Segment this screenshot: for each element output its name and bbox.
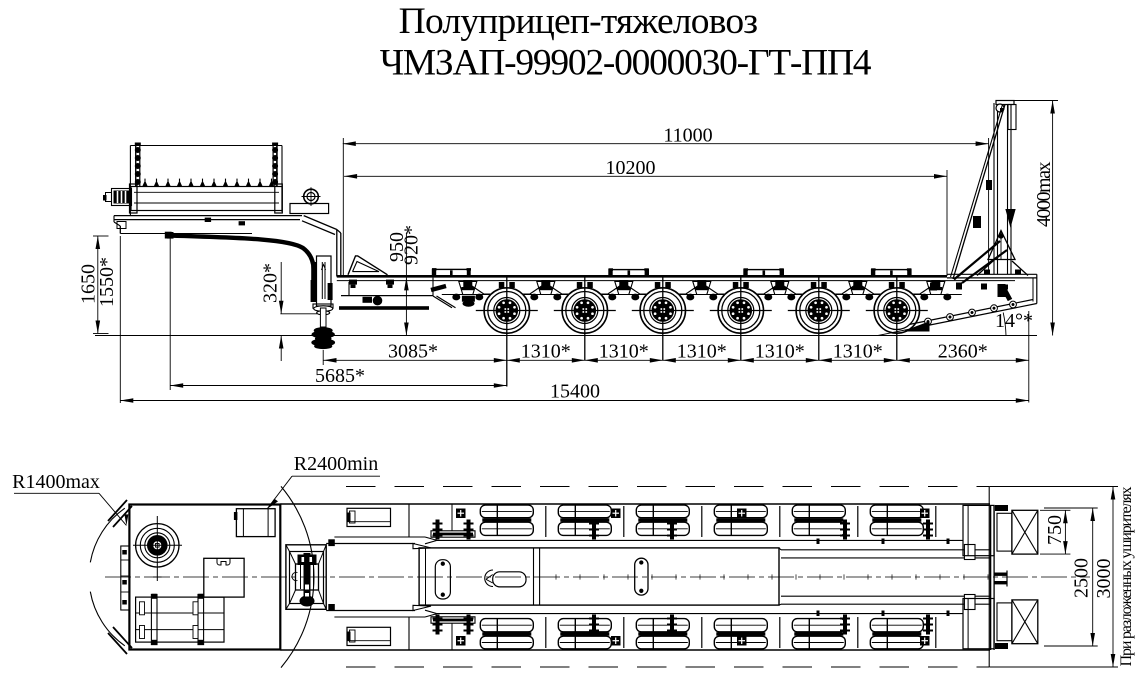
svg-text:1310*: 1310* xyxy=(755,341,805,363)
svg-text:320*: 320* xyxy=(260,263,282,303)
svg-text:750: 750 xyxy=(1044,515,1066,545)
svg-text:3000: 3000 xyxy=(1093,559,1115,599)
svg-text:10200: 10200 xyxy=(606,157,656,179)
svg-text:1310*: 1310* xyxy=(599,341,649,363)
svg-text:14°*: 14°* xyxy=(995,310,1033,332)
svg-text:При разложенных уширителях: При разложенных уширителях xyxy=(1118,486,1135,666)
svg-text:1310*: 1310* xyxy=(521,341,571,363)
svg-text:4000max: 4000max xyxy=(1033,162,1055,227)
svg-text:1310*: 1310* xyxy=(677,341,727,363)
svg-text:Полуприцеп-тяжеловоз: Полуприцеп-тяжеловоз xyxy=(399,1,758,42)
svg-text:2500: 2500 xyxy=(1071,558,1093,598)
svg-text:1310*: 1310* xyxy=(833,341,883,363)
svg-text:2360*: 2360* xyxy=(938,341,988,363)
svg-text:920*: 920* xyxy=(401,225,423,265)
svg-text:11000: 11000 xyxy=(663,124,712,146)
svg-text:ЧМЗАП-99902-0000030-ГТ-ПП4: ЧМЗАП-99902-0000030-ГТ-ПП4 xyxy=(380,43,872,84)
svg-text:15400: 15400 xyxy=(550,381,600,403)
svg-text:R1400max: R1400max xyxy=(12,471,100,493)
svg-text:R2400min: R2400min xyxy=(294,453,378,475)
svg-text:3085*: 3085* xyxy=(388,341,438,363)
svg-text:1550*: 1550* xyxy=(96,257,118,307)
svg-text:5685*: 5685* xyxy=(315,365,365,387)
